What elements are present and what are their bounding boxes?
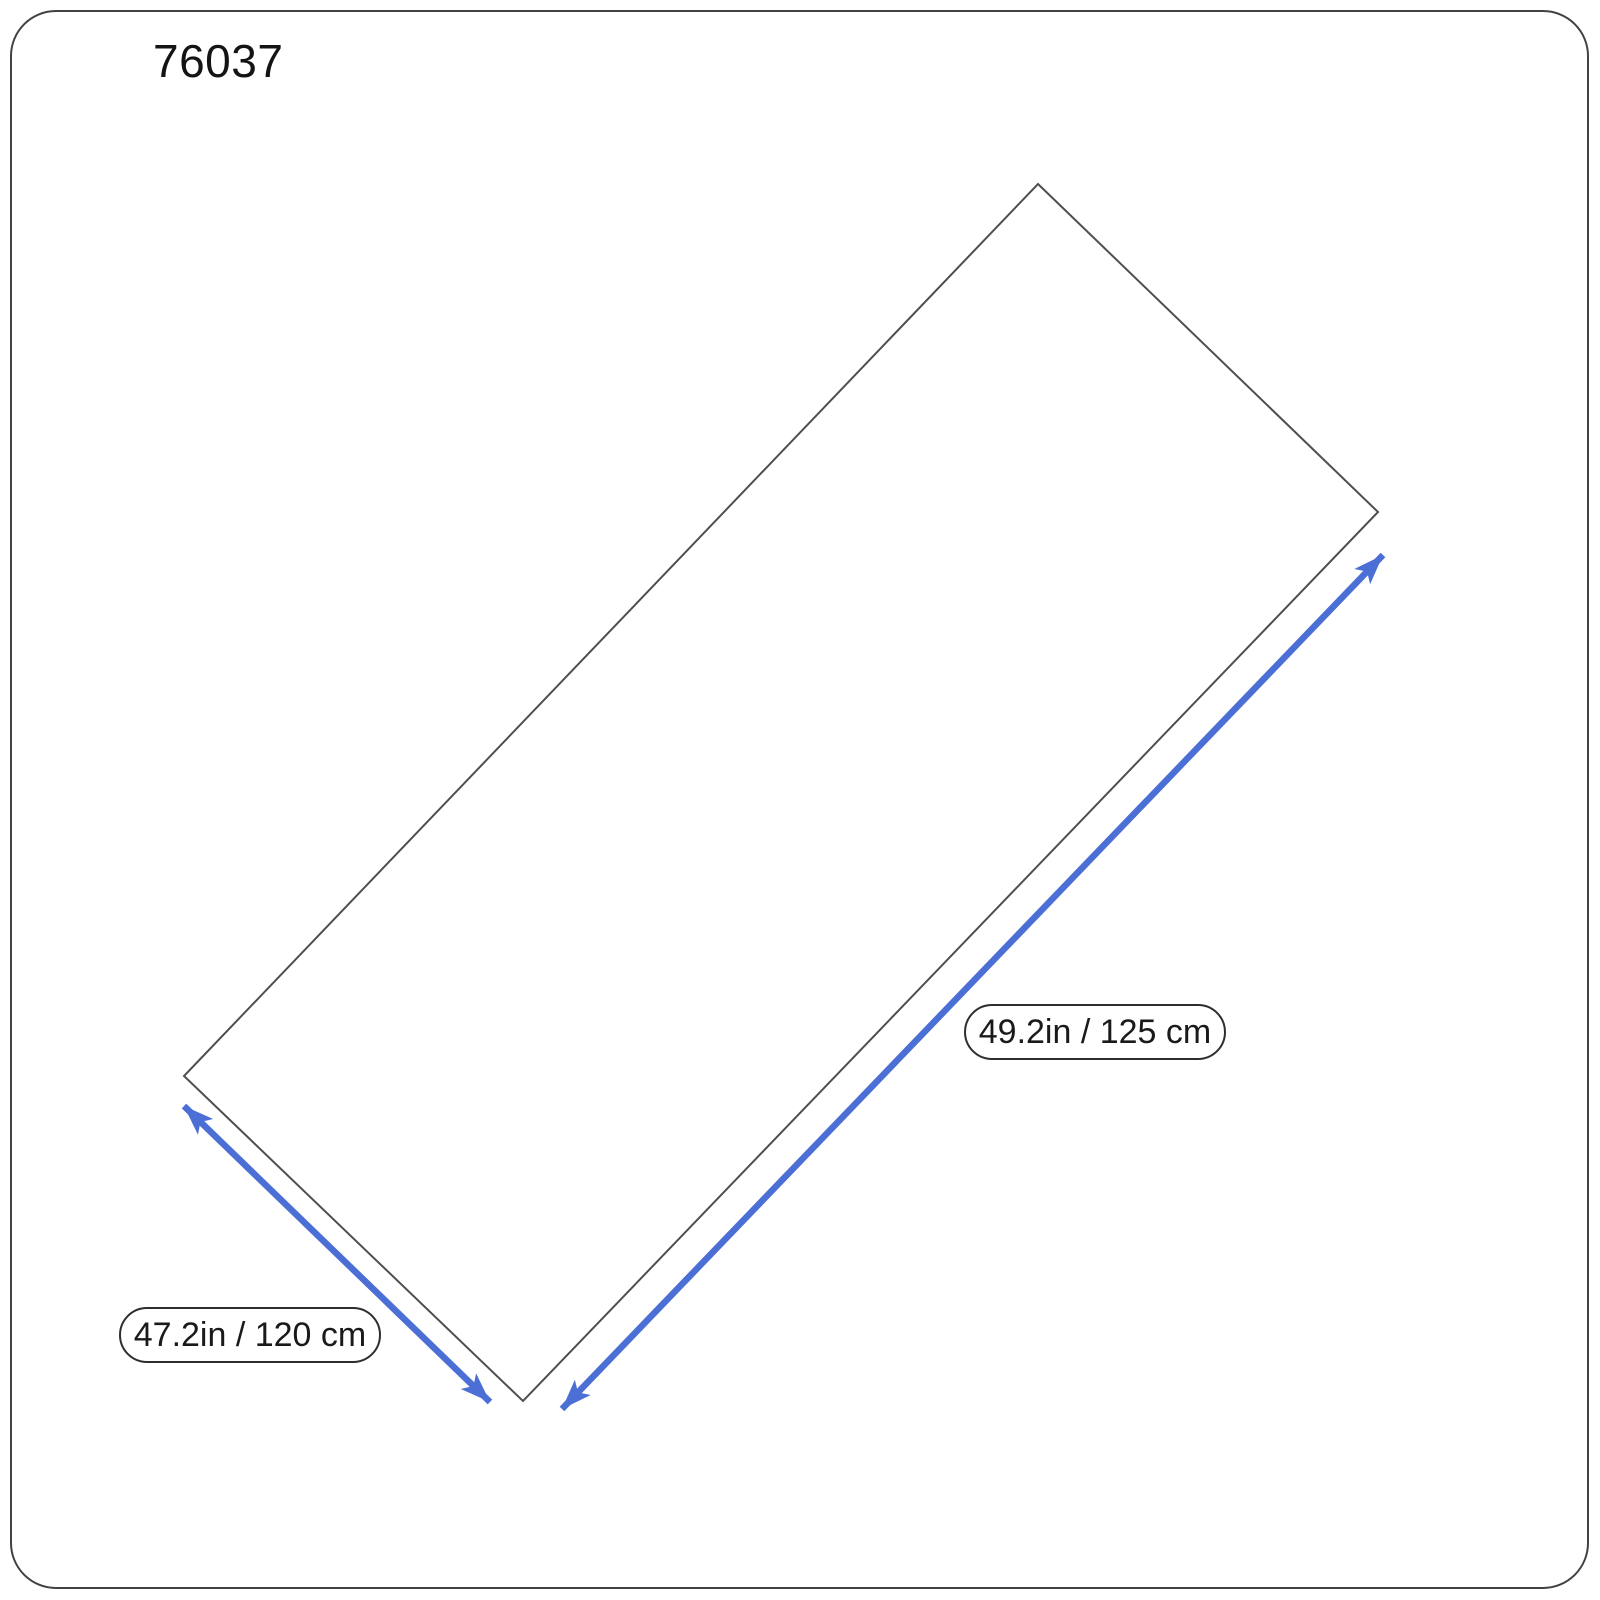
dimension-label-short-side: 47.2in / 120 cm [119,1307,381,1363]
diagram-canvas: 76037 49.2in / 125 cm 47.2in / 120 cm [0,0,1600,1600]
dimension-label-long-side: 49.2in / 125 cm [964,1004,1226,1060]
dimension-arrow-long [562,555,1383,1409]
mat-outline [184,184,1378,1401]
